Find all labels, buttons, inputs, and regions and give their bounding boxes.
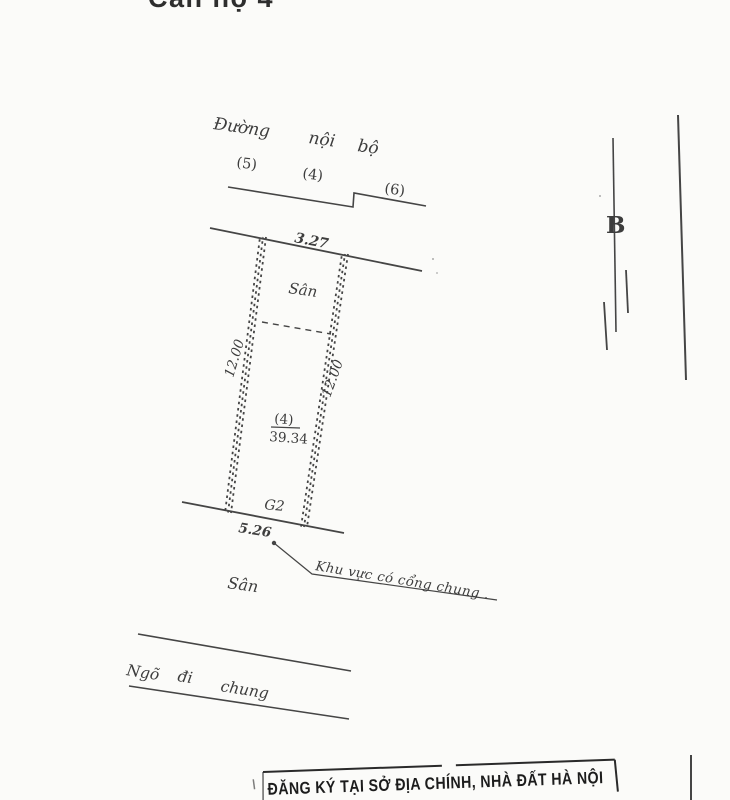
scanned-cadastral-page: Căn hộ 4 Đường nội bộ (5) (4) (6) 3.27 S… xyxy=(0,0,730,800)
scan-border-right xyxy=(678,115,686,380)
parcel-ref-5: (5) xyxy=(236,155,258,173)
registration-stamp: ĐĂNG KÝ TẠI SỞ ĐỊA CHÍNH, NHÀ ĐẤT HÀ NỘI xyxy=(253,760,618,800)
dimension-top-width: 3.27 xyxy=(293,230,330,252)
road-name-word-1: Đường xyxy=(211,114,271,142)
road-name-word-2: nội xyxy=(307,128,336,152)
alley-word-1: Ngõ xyxy=(124,661,160,684)
road-name-word-3: bộ xyxy=(356,136,380,159)
yard-top-label: Sân xyxy=(287,279,318,301)
alley-word-3: chung xyxy=(219,677,270,702)
b-marker-label: B xyxy=(606,212,625,239)
alley-upper-line xyxy=(138,634,351,671)
dimension-bottom-width: 5.26 xyxy=(237,520,273,541)
parcel-ref-4-road: (4) xyxy=(302,166,324,184)
dimension-right-depth: 12.00 xyxy=(319,357,347,399)
interior-dashed-divider xyxy=(262,322,331,334)
gate-label: G2 xyxy=(264,497,286,515)
b-side-dash-left xyxy=(604,302,607,350)
scan-noise-specks xyxy=(432,195,601,274)
site-plan-drawing: Đường nội bộ (5) (4) (6) 3.27 Sân 12. xyxy=(0,0,730,800)
shared-gate-note: Khu vực có cổng chung . xyxy=(313,558,490,603)
parcel-ref-6: (6) xyxy=(384,181,406,199)
b-side-dash-right xyxy=(626,270,628,313)
parcel-id: (4) xyxy=(274,411,294,428)
stamp-text: ĐĂNG KÝ TẠI SỞ ĐỊA CHÍNH, NHÀ ĐẤT HÀ NỘI xyxy=(267,768,603,799)
parcel-fraction-line xyxy=(271,427,300,428)
yard-bottom-label: Sân xyxy=(226,573,259,596)
parcel-area: 39.34 xyxy=(269,429,309,448)
alley-word-2: đi xyxy=(176,667,194,687)
